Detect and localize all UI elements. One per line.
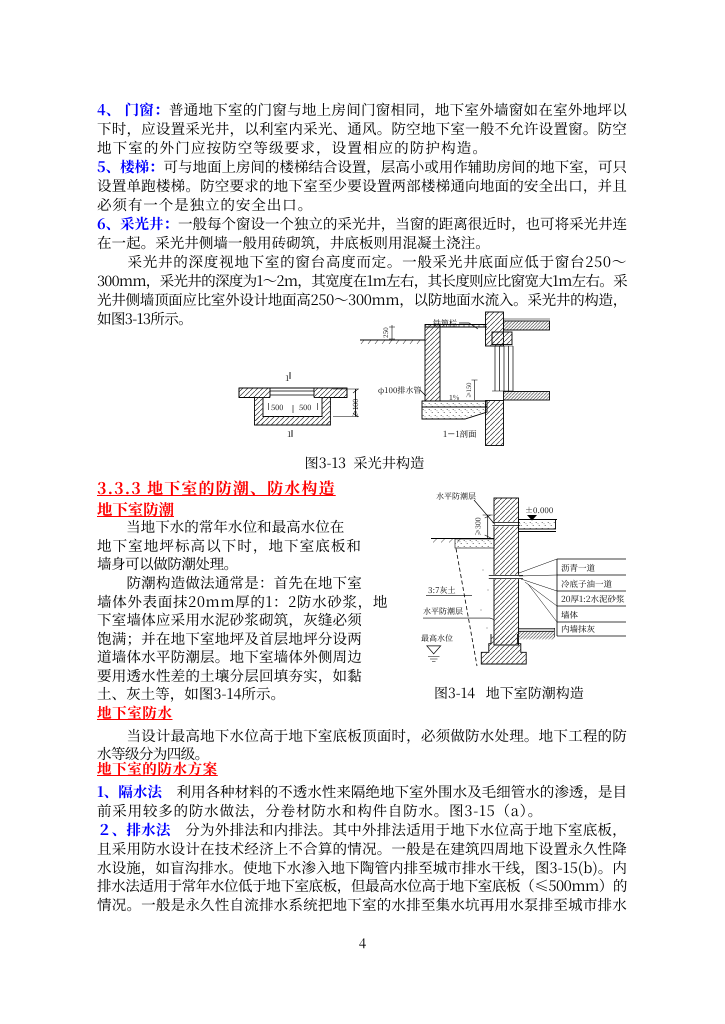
svg-text:≥150: ≥150 [464, 382, 473, 398]
svg-text:墙体: 墙体 [561, 609, 579, 621]
svg-text:500: 500 [271, 402, 283, 413]
svg-text:φ100排水管: φ100排水管 [378, 385, 421, 396]
svg-text:水平防潮层: 水平防潮层 [436, 491, 476, 502]
svg-text:≥300: ≥300 [474, 517, 484, 536]
svg-text:250: 250 [381, 327, 390, 338]
svg-text:±0.000: ±0.000 [525, 505, 554, 516]
svg-text:冷底子油一道: 冷底子油一道 [561, 578, 613, 590]
svg-text:500: 500 [299, 402, 311, 413]
svg-text:1－1剖面: 1－1剖面 [443, 428, 477, 440]
svg-text:1: 1 [287, 429, 291, 440]
svg-text:1%: 1% [449, 393, 460, 403]
svg-text:沥青一道: 沥青一道 [561, 562, 596, 574]
svg-text:最高水位: 最高水位 [421, 633, 453, 644]
svg-text:内墙抹灰: 内墙抹灰 [561, 623, 596, 635]
svg-text:20厚1:2水泥砂浆: 20厚1:2水泥砂浆 [561, 593, 625, 605]
svg-text:≥100: ≥100 [351, 399, 361, 417]
svg-text:水平防潮层: 水平防潮层 [423, 606, 463, 617]
svg-text:1: 1 [285, 373, 289, 384]
svg-text:3:7灰土: 3:7灰土 [428, 585, 455, 596]
